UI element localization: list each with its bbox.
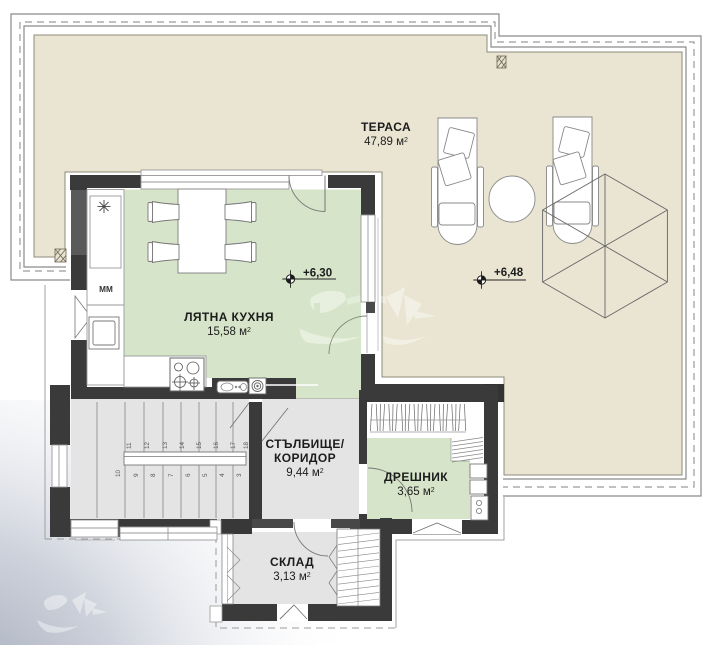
svg-text:КОРИДОР: КОРИДОР [274, 451, 336, 465]
svg-text:3,65 м2: 3,65 м2 [397, 486, 434, 498]
svg-text:MM: MM [99, 285, 113, 294]
svg-text:8: 8 [150, 473, 157, 477]
svg-text:11: 11 [126, 442, 133, 449]
svg-text:17: 17 [230, 441, 237, 449]
svg-text:15: 15 [196, 441, 203, 449]
svg-text:47,89 м2: 47,89 м2 [364, 136, 408, 148]
svg-text:14: 14 [179, 441, 186, 449]
svg-text:ДРЕШНИК: ДРЕШНИК [384, 470, 448, 484]
svg-text:9,44 м2: 9,44 м2 [286, 467, 323, 479]
svg-text:15,58 м2: 15,58 м2 [207, 326, 251, 338]
svg-text:СКЛАД: СКЛАД [270, 555, 314, 569]
svg-text:3,13 м2: 3,13 м2 [273, 571, 310, 583]
svg-text:7: 7 [168, 473, 175, 477]
svg-text:10: 10 [115, 469, 122, 477]
svg-text:ЛЯТНА КУХНЯ: ЛЯТНА КУХНЯ [184, 310, 274, 324]
svg-text:ТЕРАСА: ТЕРАСА [361, 120, 411, 134]
svg-text:18: 18 [243, 441, 250, 449]
svg-text:3: 3 [236, 473, 243, 477]
svg-text:4: 4 [219, 473, 226, 477]
svg-text:+6,30: +6,30 [303, 268, 332, 280]
svg-text:13: 13 [162, 441, 169, 449]
svg-text:6: 6 [185, 473, 192, 477]
svg-text:12: 12 [144, 441, 151, 449]
svg-text:+6,48: +6,48 [494, 267, 524, 279]
svg-text:5: 5 [202, 473, 209, 477]
svg-text:9: 9 [133, 473, 140, 477]
svg-text:16: 16 [213, 441, 220, 449]
svg-text:СТЪЛБИЩЕ/: СТЪЛБИЩЕ/ [266, 437, 345, 451]
